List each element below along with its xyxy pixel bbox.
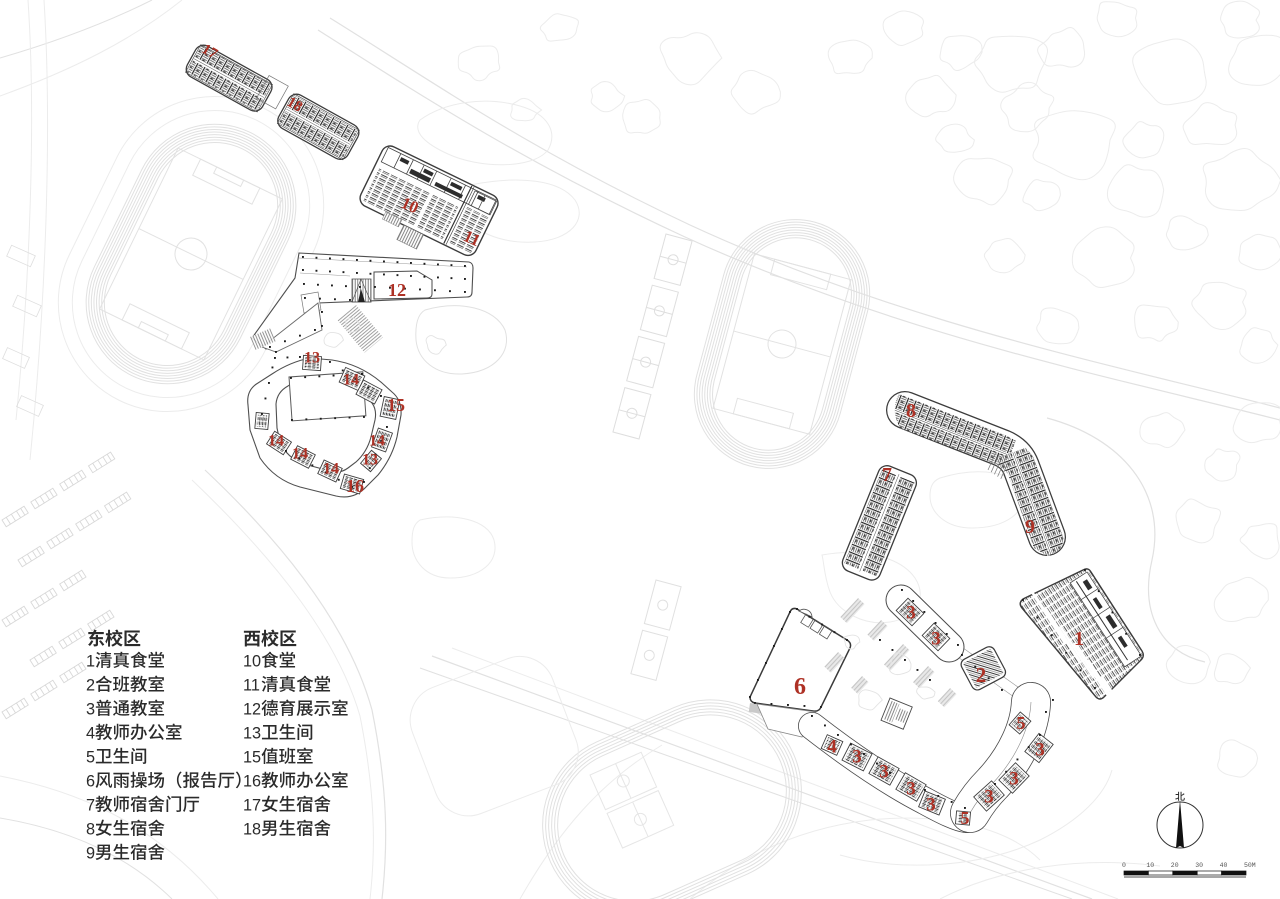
svg-text:4: 4 [827,737,837,758]
svg-text:15: 15 [387,395,405,415]
svg-text:9: 9 [86,845,95,863]
svg-text:11: 11 [243,677,260,695]
svg-text:3: 3 [86,701,95,719]
svg-text:1: 1 [1074,628,1084,650]
svg-text:5: 5 [86,749,95,767]
svg-text:10: 10 [1146,862,1154,869]
svg-text:5: 5 [961,808,970,828]
svg-text:3: 3 [852,747,862,768]
svg-text:5: 5 [1017,713,1026,733]
svg-text:8: 8 [86,821,95,839]
svg-text:30: 30 [1195,862,1203,869]
svg-text:6: 6 [794,674,806,700]
svg-text:10: 10 [243,653,261,671]
svg-text:40: 40 [1220,862,1228,869]
svg-text:12: 12 [243,701,261,719]
svg-text:17: 17 [243,797,261,815]
svg-text:7: 7 [86,797,95,815]
svg-text:50M: 50M [1244,862,1256,869]
svg-text:0: 0 [1122,862,1126,869]
svg-text:12: 12 [388,280,406,300]
svg-text:16: 16 [346,476,364,496]
svg-text:20: 20 [1171,862,1179,869]
svg-text:1: 1 [86,653,95,671]
svg-text:14: 14 [343,371,359,388]
svg-text:14: 14 [268,432,284,449]
svg-text:3: 3 [879,762,889,783]
svg-text:13: 13 [362,451,378,468]
svg-text:3: 3 [1035,740,1045,761]
svg-text:3: 3 [926,795,936,816]
svg-text:18: 18 [243,821,261,839]
svg-text:4: 4 [86,725,95,743]
svg-text:3: 3 [1009,769,1019,790]
svg-text:3: 3 [906,603,916,624]
svg-text:14: 14 [323,460,339,477]
svg-text:3: 3 [906,779,916,800]
svg-text:14: 14 [369,432,385,449]
svg-text:9: 9 [1025,516,1035,538]
svg-text:3: 3 [931,629,941,650]
svg-text:2: 2 [86,677,95,695]
svg-text:3: 3 [984,787,994,808]
svg-text:14: 14 [292,445,308,462]
svg-text:8: 8 [906,400,916,422]
svg-text:13: 13 [243,725,261,743]
svg-text:2: 2 [976,663,987,687]
svg-text:15: 15 [243,749,261,767]
svg-text:6: 6 [86,773,95,791]
svg-text:16: 16 [243,773,261,791]
svg-text:7: 7 [882,464,892,486]
svg-text:13: 13 [304,349,320,366]
